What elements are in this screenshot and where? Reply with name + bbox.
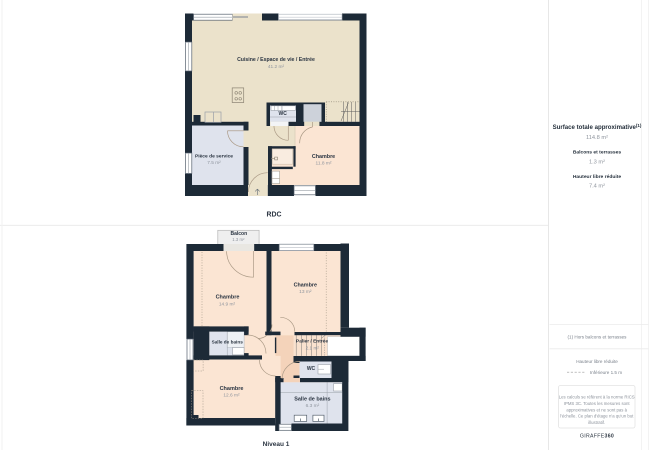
svg-text:1.3 m²: 1.3 m² [589,160,605,166]
svg-text:7.5 m²: 7.5 m² [207,160,221,166]
svg-text:Chambre: Chambre [294,282,317,288]
svg-text:11.8 m²: 11.8 m² [316,160,332,166]
svg-text:WC: WC [279,111,288,117]
svg-text:Balcons et terrasses: Balcons et terrasses [573,149,622,155]
svg-text:Chambre: Chambre [312,154,335,160]
svg-text:IPMS 3C. Toutes les mesures so: IPMS 3C. Toutes les mesures sont [564,401,631,406]
svg-text:2.1 m²: 2.1 m² [306,345,320,350]
svg-text:13 m²: 13 m² [299,289,312,295]
svg-text:Hauteur libre réduite: Hauteur libre réduite [573,174,622,180]
svg-text:l'échelle. Ce plan d'étage n'a: l'échelle. Ce plan d'étage n'a qu'un but [560,414,634,419]
svg-text:Niveau 1: Niveau 1 [263,441,290,448]
svg-text:Salle de bains: Salle de bains [212,340,244,345]
svg-text:114.8 m²: 114.8 m² [586,135,608,141]
svg-text:(1) Hors balcons et terrasses: (1) Hors balcons et terrasses [568,335,628,340]
svg-text:Palier / Entrée: Palier / Entrée [296,339,328,345]
svg-text:approximatives et ne sont pas: approximatives et ne sont pas à [566,407,627,412]
svg-text:Surface totale approximative(1: Surface totale approximative(1) [553,123,642,131]
svg-text:Les calculs se réfèrent à la n: Les calculs se réfèrent à la norme RICS [559,395,635,400]
svg-text:GIRAFFE360: GIRAFFE360 [580,433,614,439]
svg-text:Pièce de service: Pièce de service [195,153,233,159]
svg-text:Chambre: Chambre [216,294,240,300]
svg-text:RDC: RDC [267,212,282,219]
svg-text:12.6 m²: 12.6 m² [223,393,240,399]
svg-text:6.3 m²: 6.3 m² [306,403,320,409]
svg-text:WC: WC [307,366,316,372]
svg-text:41.2 m²: 41.2 m² [268,64,285,70]
svg-text:Salle de bains: Salle de bains [294,396,330,402]
svg-text:Inférieure 1.5 m: Inférieure 1.5 m [590,370,622,375]
svg-text:1.3 m²: 1.3 m² [232,237,245,242]
svg-text:illustratif.: illustratif. [588,420,605,425]
svg-text:Chambre: Chambre [220,386,244,392]
svg-text:Hauteur libre réduite: Hauteur libre réduite [576,359,618,364]
svg-text:7.4 m²: 7.4 m² [589,183,605,189]
svg-text:Cuisine / Espace de vie / Entr: Cuisine / Espace de vie / Entrée [237,57,315,63]
svg-text:14.9 m²: 14.9 m² [219,301,236,307]
